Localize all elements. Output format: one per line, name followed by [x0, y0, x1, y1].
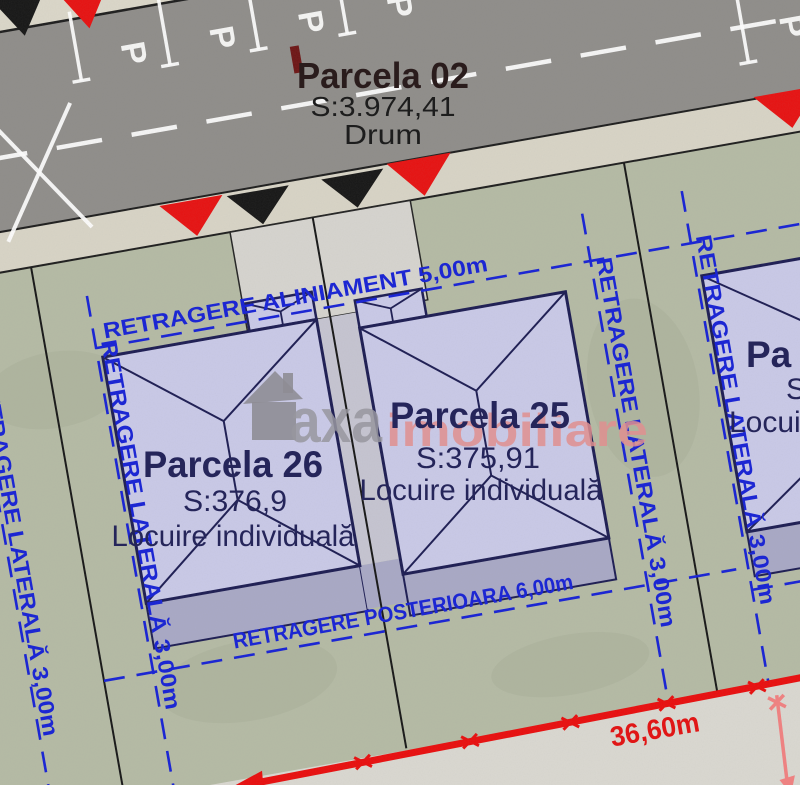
road-type-label: Drum	[344, 119, 422, 150]
parcel-26-area: S:376,9	[183, 485, 287, 518]
site-plan-svg: P P P P P	[0, 0, 800, 785]
parcel-26-use: Locuire individuală	[112, 520, 355, 553]
parcel-right-area-fragment: S	[786, 373, 800, 406]
parcel-25-use: Locuire individuală	[360, 474, 603, 507]
parcel-right-use-fragment: Locui	[729, 406, 800, 439]
parcel-26-name: Parcela 26	[143, 444, 323, 485]
parcel-25-name: Parcela 25	[390, 395, 570, 436]
road-parcel-name: Parcela 02	[297, 55, 469, 96]
parcel-right-name-fragment: Pa	[746, 334, 792, 375]
site-plan: P P P P P	[0, 0, 800, 785]
parcel-25-area: S:375,91	[416, 442, 540, 475]
road-parcel-area: S:3.974,41	[311, 91, 456, 122]
